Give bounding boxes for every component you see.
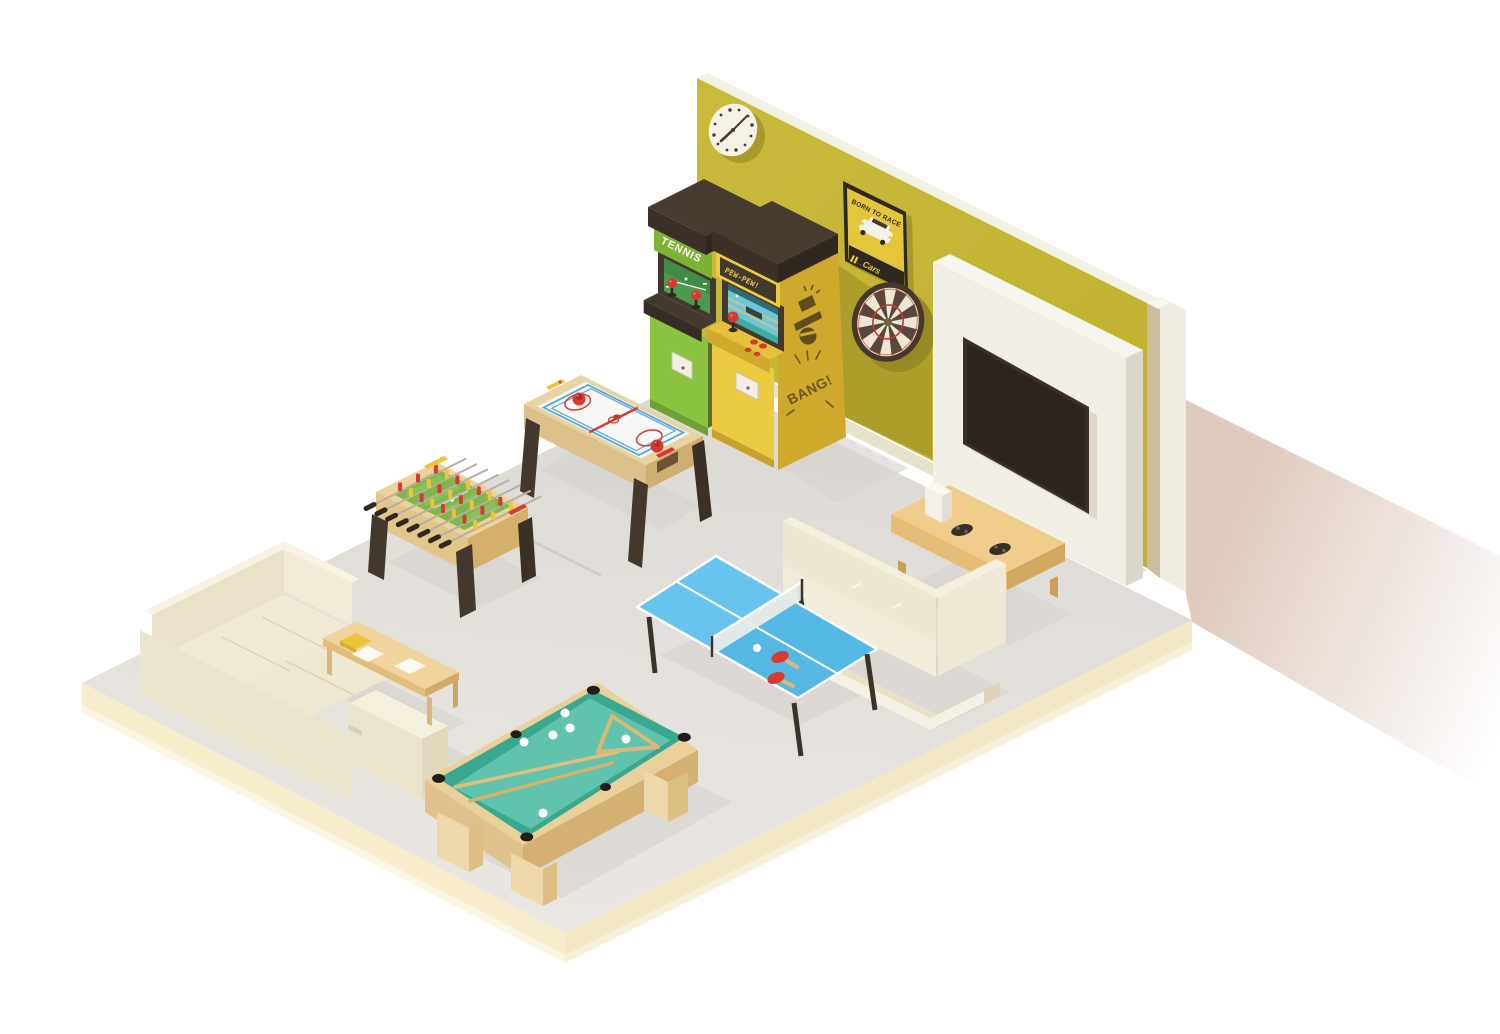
isometric-game-room-illustration: BORN TO RACE Cars bbox=[0, 0, 1500, 1034]
scene-canvas: BORN TO RACE Cars bbox=[0, 0, 1500, 1034]
tennis-joystick-2 bbox=[691, 290, 701, 300]
air-hockey-mallet bbox=[573, 393, 586, 406]
tv-panel-side bbox=[1126, 350, 1143, 586]
shooter-joystick bbox=[728, 312, 739, 323]
wall-end-white-cap bbox=[1160, 297, 1186, 592]
wall-end-tan-edge bbox=[1147, 303, 1160, 578]
air-hockey-puck bbox=[613, 415, 621, 420]
tennis-joystick bbox=[667, 278, 677, 288]
air-hockey-mallet-2 bbox=[651, 440, 664, 453]
room-cast-shadow bbox=[1186, 400, 1500, 800]
ping-pong-ball bbox=[753, 644, 761, 652]
